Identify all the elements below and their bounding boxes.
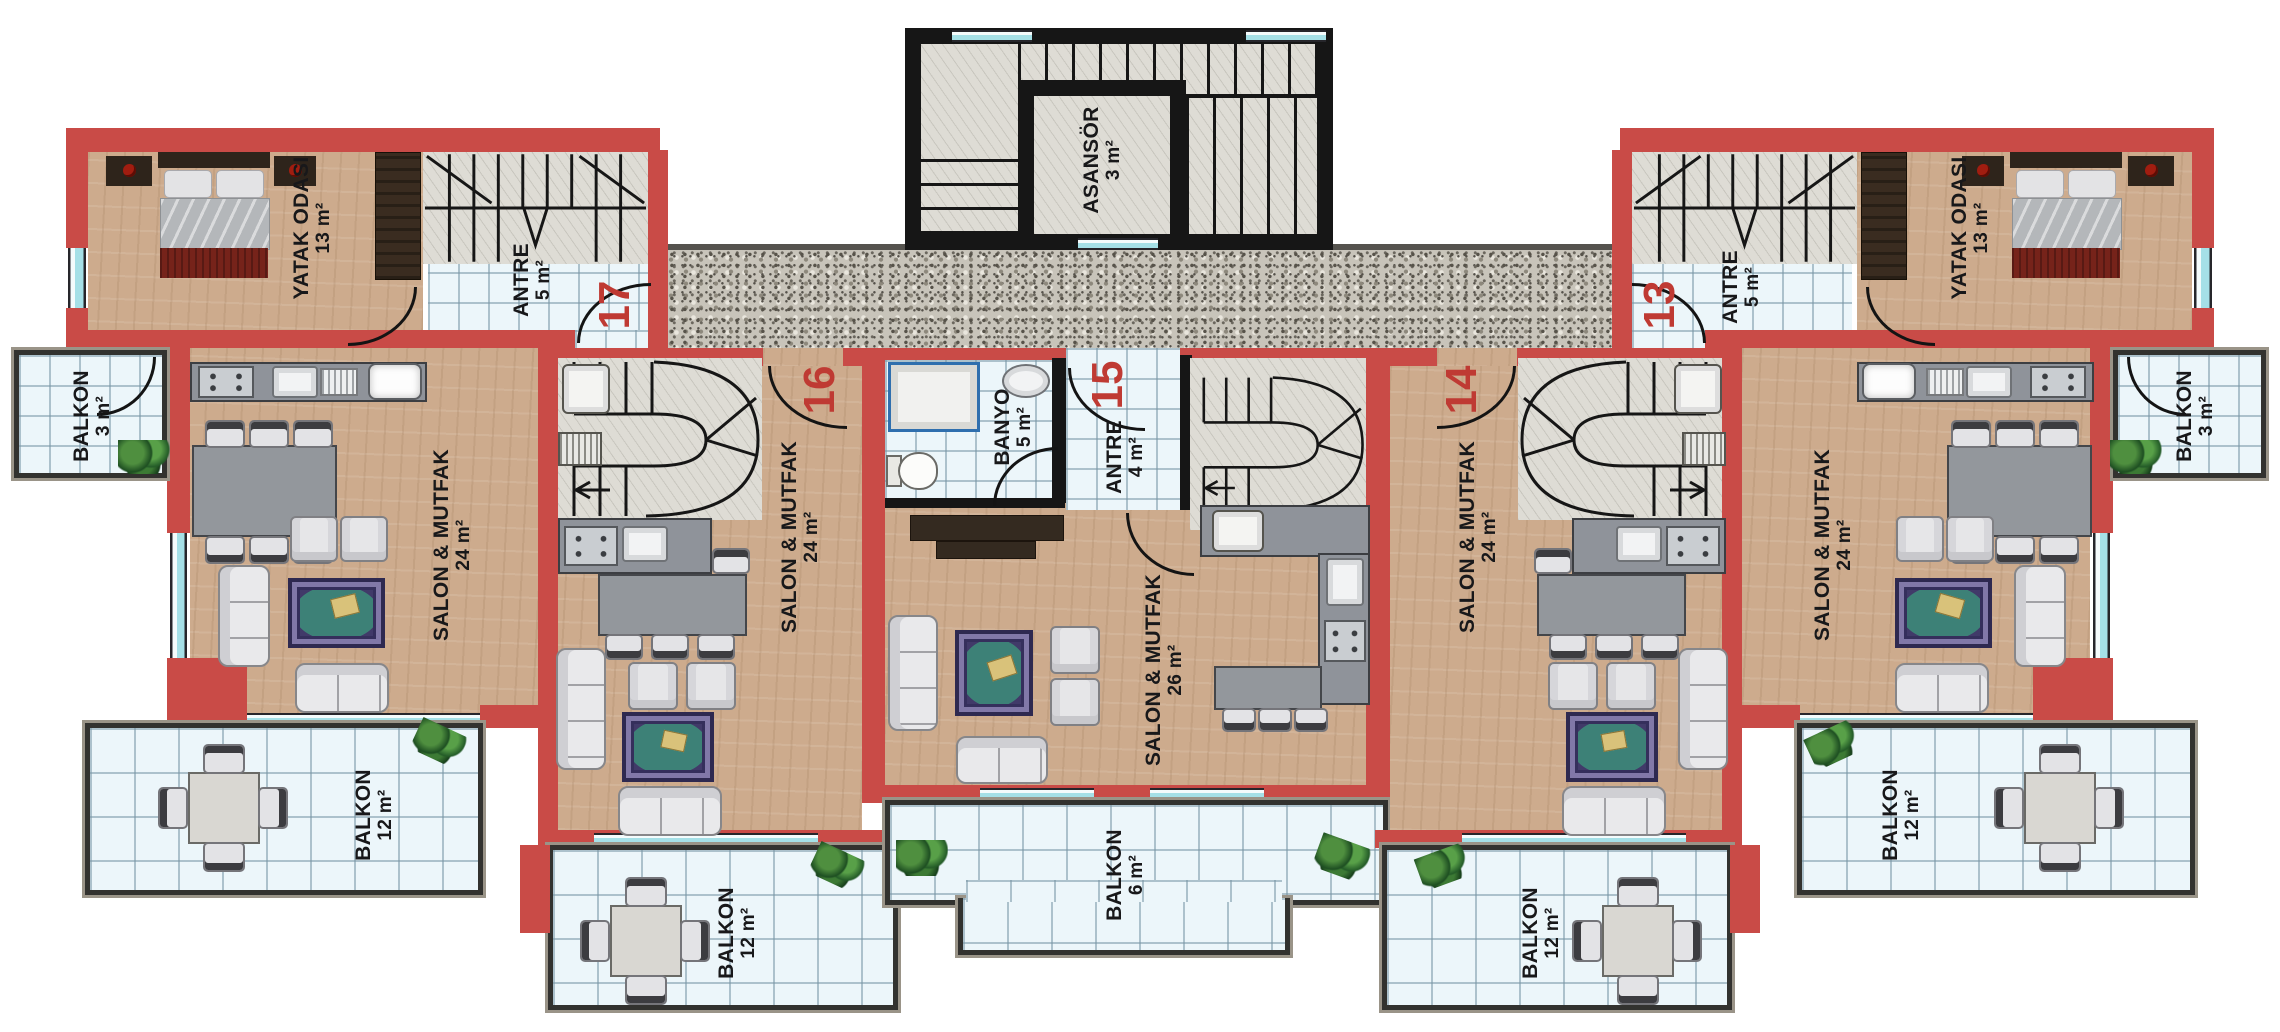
rug bbox=[1895, 578, 1992, 648]
unit13-wall-bottom-a bbox=[1705, 330, 2192, 348]
unit14-balcony-table bbox=[1602, 905, 1674, 977]
unit14-loveseat bbox=[1562, 786, 1666, 836]
room-area: 12 m² bbox=[1542, 907, 1563, 958]
unit14-vent bbox=[1682, 432, 1726, 466]
unit15-balcony-window-right bbox=[1150, 788, 1264, 800]
unit13-salon-window-right bbox=[2093, 533, 2110, 658]
unit-number-text: 16 bbox=[795, 366, 845, 415]
room-name: SALON & MUTFAK bbox=[1811, 449, 1835, 641]
unit17-salon-wall-left-lower bbox=[167, 658, 247, 728]
unit16-number: 16 bbox=[790, 360, 850, 420]
unit14-salon-label: SALON & MUTFAK 24 m² bbox=[1453, 457, 1503, 617]
chair bbox=[1995, 420, 2035, 448]
room-name: ANTRE bbox=[1103, 420, 1127, 494]
unit15-wall-left bbox=[862, 348, 885, 803]
coffee-table bbox=[987, 654, 1018, 681]
unit-number-text: 15 bbox=[1083, 361, 1133, 410]
unit17-balcony12-label: BALKON 12 m² bbox=[349, 735, 399, 895]
room-name: BALKON bbox=[1879, 769, 1903, 861]
room-area: 24 m² bbox=[453, 519, 474, 570]
unit13-salon-wall-right-lower bbox=[2033, 658, 2113, 728]
chair bbox=[1617, 877, 1659, 907]
unit14-wall-right bbox=[1722, 348, 1742, 848]
armchair bbox=[1946, 516, 1994, 562]
room-name: ANTRE bbox=[1719, 250, 1743, 324]
corridor-edge-right bbox=[1333, 244, 1612, 250]
unit13-kitchen-sink bbox=[1966, 366, 2012, 398]
unit14-dining-table bbox=[1537, 574, 1686, 636]
unit15-tv-unit bbox=[910, 515, 1064, 541]
unit13-salon-wall-corner bbox=[1742, 705, 1800, 728]
chair bbox=[1572, 920, 1602, 962]
chair bbox=[1222, 708, 1256, 732]
unit16-kitchen-sink bbox=[622, 526, 668, 562]
armchair bbox=[1050, 678, 1100, 726]
unit15-balcony-label: BALKON 6 m² bbox=[1100, 795, 1150, 955]
rug bbox=[1566, 712, 1658, 782]
chair bbox=[1995, 536, 2035, 564]
armchair bbox=[340, 516, 388, 562]
armchair bbox=[1896, 516, 1944, 562]
stair-core-right-flight bbox=[1186, 96, 1317, 234]
floor-plan: ASANSÖR 3 m² bbox=[0, 0, 2280, 1032]
unit15-stove bbox=[1324, 620, 1366, 662]
room-name: BALKON bbox=[70, 370, 94, 462]
unit17-wardrobe bbox=[375, 152, 421, 280]
armchair bbox=[1548, 662, 1598, 710]
unit17-loveseat bbox=[295, 663, 389, 713]
unit13-salon-label: SALON & MUTFAK 24 m² bbox=[1808, 465, 1858, 625]
unit17-fridge bbox=[368, 363, 422, 400]
corridor-wall-left bbox=[648, 150, 668, 348]
unit13-bed-foot bbox=[2012, 248, 2120, 278]
room-area: 3 m² bbox=[93, 396, 114, 436]
unit16-vent bbox=[558, 432, 602, 466]
chair bbox=[625, 877, 667, 907]
unit15-dishwasher bbox=[1212, 510, 1264, 552]
room-name: BALKON bbox=[715, 887, 739, 979]
room-name: BALKON bbox=[1103, 829, 1127, 921]
unit13-balcony12-label: BALKON 12 m² bbox=[1876, 735, 1926, 895]
unit14-balcony-label: BALKON 12 m² bbox=[1516, 853, 1566, 1013]
unit15-loveseat bbox=[956, 736, 1048, 784]
chair bbox=[1994, 787, 2024, 829]
room-name: SALON & MUTFAK bbox=[1142, 574, 1166, 766]
chair bbox=[158, 787, 188, 829]
elevator-label: ASANSÖR 3 m² bbox=[1080, 90, 1124, 230]
room-area: 12 m² bbox=[738, 907, 759, 958]
coffee-table bbox=[330, 593, 360, 619]
chair bbox=[2039, 842, 2081, 872]
chair bbox=[249, 420, 289, 448]
unit15-sofa bbox=[888, 615, 938, 731]
chair bbox=[249, 536, 289, 564]
elevator-name: ASANSÖR bbox=[1080, 106, 1104, 213]
chair bbox=[258, 787, 288, 829]
room-area: 12 m² bbox=[375, 789, 396, 840]
corridor-edge-left bbox=[668, 244, 905, 250]
room-area: 3 m² bbox=[2196, 396, 2217, 436]
chair bbox=[1258, 708, 1292, 732]
room-name: ANTRE bbox=[510, 243, 534, 317]
unit17-antre-label: ANTRE 5 m² bbox=[507, 200, 557, 360]
armchair bbox=[686, 662, 736, 710]
chair bbox=[1641, 634, 1679, 660]
plant bbox=[2110, 440, 2162, 474]
room-name: SALON & MUTFAK bbox=[430, 449, 454, 641]
chair bbox=[1617, 975, 1659, 1005]
unit14-kitchen-sink bbox=[1616, 526, 1662, 562]
room-area: 6 m² bbox=[1126, 855, 1147, 895]
armchair bbox=[1050, 626, 1100, 674]
lamp-icon bbox=[2145, 164, 2158, 177]
unit13-bedroom-label: YATAK ODASI 13 m² bbox=[1945, 148, 1995, 308]
unit13-stove bbox=[2030, 366, 2086, 398]
chair bbox=[293, 420, 333, 448]
chair bbox=[205, 536, 245, 564]
unit17-window-left bbox=[68, 248, 86, 310]
unit16-loveseat bbox=[618, 786, 722, 836]
unit17-bed-headboard bbox=[158, 152, 270, 168]
room-name: BANYO bbox=[991, 388, 1015, 465]
coffee-table bbox=[1601, 730, 1628, 752]
unit15-kitchen-sink bbox=[1326, 558, 1364, 606]
chair bbox=[1549, 634, 1587, 660]
unit13-wardrobe bbox=[1861, 152, 1907, 280]
chair bbox=[712, 548, 750, 574]
unit15-shower bbox=[888, 362, 980, 432]
room-name: SALON & MUTFAK bbox=[778, 441, 802, 633]
unit17-number: 17 bbox=[585, 275, 645, 335]
unit16-wall-left bbox=[538, 348, 558, 848]
chair bbox=[1672, 920, 1702, 962]
room-name: BALKON bbox=[2173, 370, 2197, 462]
unit14-appliance bbox=[1674, 364, 1722, 414]
chair bbox=[680, 920, 710, 962]
room-name: SALON & MUTFAK bbox=[1456, 441, 1480, 633]
unit13-window-right bbox=[2194, 248, 2212, 310]
chair bbox=[205, 420, 245, 448]
unit13-wall-right-upper bbox=[2192, 128, 2214, 248]
elevator-area: 3 m² bbox=[1103, 140, 1124, 180]
elevator-door bbox=[1078, 238, 1158, 250]
unit13-sofa bbox=[2014, 565, 2066, 667]
rug bbox=[622, 712, 714, 782]
unit14-stove bbox=[1666, 526, 1720, 566]
unit17-sofa bbox=[218, 565, 270, 667]
chair bbox=[580, 920, 610, 962]
unit16-balcony-wall-left bbox=[520, 845, 550, 933]
corridor-floor bbox=[668, 250, 1612, 348]
room-name: BALKON bbox=[352, 769, 376, 861]
unit17-nightstand-left bbox=[106, 156, 152, 186]
unit17-salon-wall-corner bbox=[480, 705, 538, 728]
chair bbox=[605, 634, 643, 660]
unit14-sofa bbox=[1678, 648, 1728, 770]
unit16-balcony-label: BALKON 12 m² bbox=[712, 853, 762, 1013]
coffee-table bbox=[1935, 593, 1966, 619]
room-area: 24 m² bbox=[1479, 511, 1500, 562]
stair-core-wall-bottom-right bbox=[1186, 234, 1333, 250]
chair bbox=[625, 975, 667, 1005]
room-area: 5 m² bbox=[1742, 267, 1763, 307]
unit13-wall-top bbox=[1620, 128, 2214, 152]
unit17-bed-blanket bbox=[160, 198, 270, 250]
unit13-balcony-table bbox=[2024, 772, 2096, 844]
unit14-balcony-wall-right bbox=[1730, 845, 1760, 933]
unit15-number: 15 bbox=[1078, 355, 1138, 415]
unit17-wall-top bbox=[66, 128, 660, 152]
unit17-stove bbox=[198, 366, 254, 398]
unit17-wall-left-upper bbox=[66, 128, 88, 248]
unit17-balcony3-label: BALKON 3 m² bbox=[67, 336, 117, 496]
unit17-bed-pillow bbox=[216, 170, 264, 198]
unit17-balcony-table bbox=[188, 772, 260, 844]
unit14-wall-top-a bbox=[1390, 348, 1437, 366]
room-name: YATAK ODASI bbox=[290, 157, 314, 300]
unit17-drainer bbox=[320, 368, 358, 396]
unit17-wall-bottom-a bbox=[88, 330, 575, 348]
corridor-wall-right bbox=[1612, 150, 1632, 348]
unit17-bed-foot bbox=[160, 248, 268, 278]
armchair bbox=[290, 516, 338, 562]
unit15-tv-unit-lower bbox=[936, 541, 1036, 559]
room-area: 12 m² bbox=[1902, 789, 1923, 840]
room-name: YATAK ODASI bbox=[1948, 157, 1972, 300]
unit15-dining-table bbox=[1214, 666, 1322, 710]
room-area: 4 m² bbox=[1126, 437, 1147, 477]
unit16-balcony-table bbox=[610, 905, 682, 977]
chair bbox=[651, 634, 689, 660]
unit15-toilet bbox=[898, 452, 938, 490]
unit15-banyo-label: BANYO 5 m² bbox=[988, 347, 1038, 507]
stair-core-wall-left bbox=[905, 28, 921, 250]
chair bbox=[2039, 744, 2081, 774]
rug bbox=[288, 578, 385, 648]
chair bbox=[2039, 420, 2079, 448]
room-name: BALKON bbox=[1519, 887, 1543, 979]
unit-number-text: 13 bbox=[1635, 281, 1685, 330]
unit14-number: 14 bbox=[1432, 360, 1492, 420]
room-area: 13 m² bbox=[313, 202, 334, 253]
armchair bbox=[1606, 662, 1656, 710]
plant bbox=[118, 440, 170, 474]
unit-number-text: 14 bbox=[1437, 366, 1487, 415]
rug bbox=[955, 630, 1033, 716]
unit13-antre-label: ANTRE 5 m² bbox=[1716, 207, 1766, 367]
unit17-salon-wall-left-upper bbox=[167, 348, 190, 533]
unit17-bed-pillow bbox=[164, 170, 212, 198]
room-area: 5 m² bbox=[533, 260, 554, 300]
chair bbox=[697, 634, 735, 660]
unit13-bed-pillow bbox=[2068, 170, 2116, 198]
unit13-loveseat bbox=[1895, 663, 1989, 713]
unit17-salon-label: SALON & MUTFAK 24 m² bbox=[427, 465, 477, 625]
unit16-salon-label: SALON & MUTFAK 24 m² bbox=[775, 457, 825, 617]
unit15-balcony-window-left bbox=[980, 788, 1094, 800]
coffee-table bbox=[660, 730, 687, 753]
unit16-sofa bbox=[556, 648, 606, 770]
chair bbox=[1534, 548, 1572, 574]
chair bbox=[203, 842, 245, 872]
unit16-dining-table bbox=[598, 574, 747, 636]
chair bbox=[1951, 420, 1991, 448]
stair-core-window-right bbox=[1246, 30, 1326, 42]
room-area: 5 m² bbox=[1014, 407, 1035, 447]
unit17-salon-window-left bbox=[170, 533, 187, 658]
unit13-number: 13 bbox=[1630, 275, 1690, 335]
chair bbox=[2039, 536, 2079, 564]
stair-core-left-flight bbox=[921, 150, 1018, 234]
chair bbox=[1595, 634, 1633, 660]
room-area: 24 m² bbox=[801, 511, 822, 562]
unit13-bed-blanket bbox=[2012, 198, 2122, 250]
unit13-balcony3-label: BALKON 3 m² bbox=[2170, 336, 2220, 496]
unit17-bedroom-label: YATAK ODASI 13 m² bbox=[287, 148, 337, 308]
stair-core-wall-right bbox=[1317, 28, 1333, 250]
unit13-drainer bbox=[1926, 368, 1964, 396]
lamp-icon bbox=[123, 164, 136, 177]
stair-core-window-left bbox=[952, 30, 1032, 42]
chair bbox=[203, 744, 245, 774]
unit-number-text: 17 bbox=[590, 281, 640, 330]
unit17-kitchen-sink bbox=[272, 366, 318, 398]
room-area: 13 m² bbox=[1971, 202, 1992, 253]
unit16-appliance bbox=[562, 364, 610, 414]
unit13-fridge bbox=[1862, 363, 1916, 400]
unit13-bed-pillow bbox=[2016, 170, 2064, 198]
unit16-stove bbox=[564, 526, 618, 566]
unit13-bed-headboard bbox=[2010, 152, 2122, 168]
chair bbox=[1294, 708, 1328, 732]
plant bbox=[896, 840, 948, 876]
stair-core-wall-bottom-left bbox=[905, 234, 1018, 250]
chair bbox=[2094, 787, 2124, 829]
unit13-nightstand-right bbox=[2128, 156, 2174, 186]
room-area: 26 m² bbox=[1165, 644, 1186, 695]
armchair bbox=[628, 662, 678, 710]
unit15-salon-label: SALON & MUTFAK 26 m² bbox=[1139, 590, 1189, 750]
room-area: 24 m² bbox=[1834, 519, 1855, 570]
